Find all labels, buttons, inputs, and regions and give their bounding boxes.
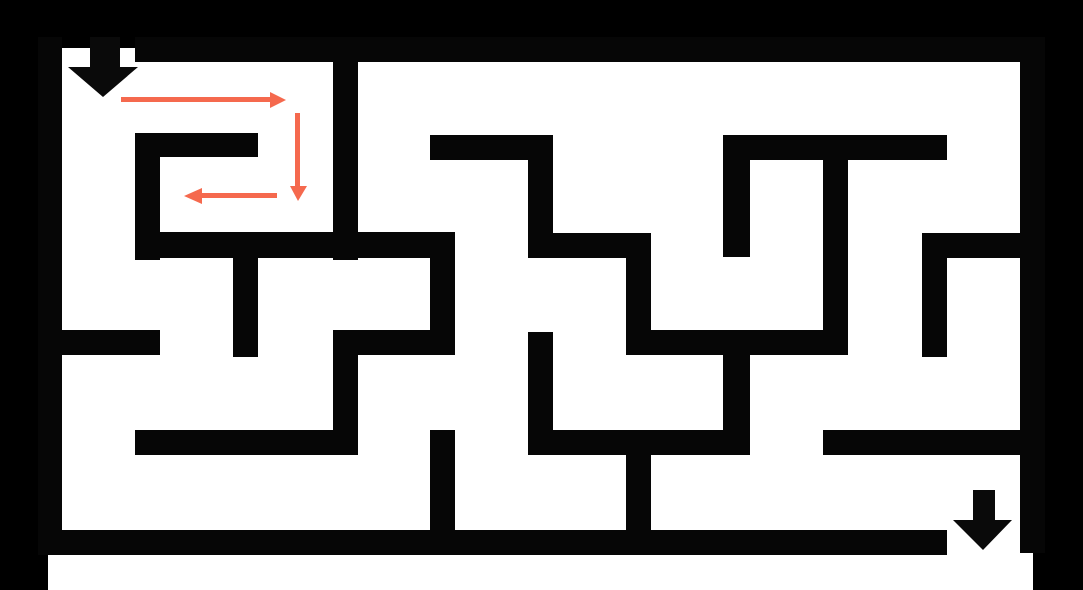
col6-bottom-wall	[626, 455, 651, 533]
maze-canvas	[0, 0, 1083, 590]
col7-stub-wall	[723, 160, 750, 257]
col9-stub-wall	[922, 258, 947, 357]
top-border-wall	[135, 37, 1045, 62]
paper-layer	[48, 48, 1033, 590]
right-border-wall	[1020, 37, 1045, 553]
col4-bottom-wall	[430, 430, 455, 533]
col7-lower-wall	[723, 355, 750, 455]
spiral-bottom-wall	[135, 232, 455, 258]
bottom-margin-strip	[48, 553, 1033, 590]
row4-right-wall	[823, 430, 1045, 455]
col2-stub-wall	[233, 258, 258, 357]
row3-left-wall	[38, 330, 160, 355]
bottom-border-wall	[38, 530, 947, 555]
left-border-wall	[38, 37, 62, 555]
col8-wall	[823, 160, 848, 355]
row4-mid-wall	[528, 430, 750, 455]
row4-left-wall	[135, 430, 358, 455]
maze-interior	[62, 62, 1020, 530]
col3-upper-wall	[333, 60, 358, 260]
row3-mid-wall	[626, 330, 848, 355]
row2-right-wall	[922, 233, 1045, 258]
maze-image	[0, 0, 1083, 590]
col4-mid-wall	[430, 258, 455, 355]
row1-right-wall	[723, 135, 947, 160]
